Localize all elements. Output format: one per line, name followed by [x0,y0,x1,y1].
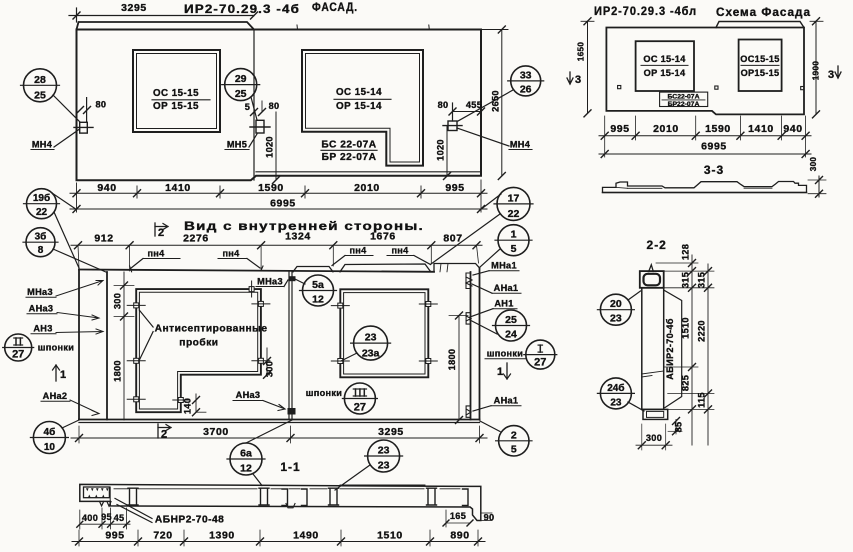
svg-text:12: 12 [312,294,324,306]
svg-text:300: 300 [113,293,123,309]
svg-text:128: 128 [681,244,691,260]
svg-text:33: 33 [520,69,532,81]
svg-text:10: 10 [44,442,56,453]
svg-text:МН4: МН4 [510,140,531,150]
svg-text:995: 995 [445,182,464,194]
svg-text:115: 115 [697,392,707,408]
svg-text:1800: 1800 [113,360,123,382]
svg-text:ОС 15-15: ОС 15-15 [153,88,199,99]
svg-text:25: 25 [34,89,46,101]
svg-text:ФАСАД.: ФАСАД. [312,0,358,14]
svg-text:28: 28 [34,74,46,86]
svg-text:27: 27 [354,402,366,414]
svg-text:АНа2: АНа2 [43,391,68,401]
svg-text:23: 23 [365,332,377,344]
svg-text:шпонки: шпонки [306,388,342,398]
svg-text:300: 300 [265,361,275,377]
svg-text:22: 22 [508,208,520,220]
svg-text:995: 995 [105,530,124,542]
svg-text:165: 165 [450,511,466,521]
svg-text:5: 5 [245,102,250,112]
svg-text:5: 5 [511,444,517,456]
svg-text:АН1: АН1 [494,299,513,309]
svg-text:912: 912 [94,233,113,245]
svg-text:2276: 2276 [183,233,209,245]
svg-text:2: 2 [511,429,517,441]
svg-text:22: 22 [36,207,48,218]
svg-text:ОС15-15: ОС15-15 [740,54,779,64]
svg-text:шпонки: шпонки [38,343,74,353]
svg-text:1020: 1020 [265,136,275,158]
svg-text:3295: 3295 [378,426,404,438]
svg-text:1410: 1410 [165,182,191,194]
svg-text:300: 300 [809,157,818,172]
svg-text:90: 90 [484,513,495,523]
svg-text:25: 25 [505,314,517,326]
svg-text:МНа3: МНа3 [257,277,283,287]
svg-text:2010: 2010 [354,182,380,194]
svg-text:940: 940 [97,182,116,194]
svg-text:80: 80 [96,100,107,110]
svg-text:3: 3 [575,74,581,86]
svg-text:АН3: АН3 [33,324,52,334]
svg-text:1900: 1900 [812,61,821,81]
svg-text:23а: 23а [362,348,380,360]
svg-text:3700: 3700 [203,426,229,438]
svg-text:5а: 5а [312,279,324,291]
svg-text:АНа3: АНа3 [236,390,261,400]
svg-text:МН5: МН5 [227,140,247,150]
svg-text:АНа1: АНа1 [494,396,519,406]
svg-text:3295: 3295 [121,2,147,14]
svg-text:27: 27 [534,357,546,369]
svg-text:26: 26 [520,83,532,95]
svg-text:23: 23 [378,460,390,472]
svg-text:пробки: пробки [179,337,218,349]
svg-text:825: 825 [681,375,691,391]
svg-text:27: 27 [12,349,24,361]
svg-text:БР22-07А: БР22-07А [668,101,700,108]
svg-text:20: 20 [610,298,622,310]
svg-text:Схема Фасада: Схема Фасада [716,5,811,19]
svg-text:6а: 6а [240,448,252,460]
svg-text:29: 29 [235,73,247,85]
svg-text:1: 1 [497,366,503,378]
svg-text:315: 315 [697,272,707,288]
svg-text:1590: 1590 [705,123,731,135]
svg-text:1-1: 1-1 [280,460,300,474]
svg-text:2: 2 [158,227,164,239]
svg-text:1510: 1510 [681,317,691,339]
svg-text:1324: 1324 [285,231,311,243]
svg-text:ОР15-15: ОР15-15 [741,68,780,78]
svg-text:1: 1 [511,229,517,241]
svg-text:23: 23 [610,313,622,325]
svg-text:1410: 1410 [748,123,774,135]
svg-text:ИР2-70.29.3 -4бл: ИР2-70.29.3 -4бл [594,4,697,18]
svg-text:400: 400 [82,513,98,523]
svg-text:720: 720 [153,530,172,542]
svg-text:6995: 6995 [270,198,296,210]
svg-text:19б: 19б [33,192,50,204]
svg-text:пн4: пн4 [391,246,409,256]
svg-text:2: 2 [161,429,167,441]
svg-text:6995: 6995 [701,141,727,153]
svg-text:3б: 3б [35,231,47,243]
svg-text:2-2: 2-2 [647,238,667,252]
svg-text:3-3: 3-3 [704,163,724,177]
svg-text:пн4: пн4 [349,246,367,256]
svg-text:МНа1: МНа1 [491,261,517,271]
svg-text:1676: 1676 [370,231,396,243]
svg-text:17: 17 [508,192,520,204]
svg-text:ОР 15-14: ОР 15-14 [336,101,382,112]
svg-text:85: 85 [674,422,684,433]
svg-text:23: 23 [378,445,390,457]
svg-text:1590: 1590 [258,182,284,194]
svg-text:БР 22-07А: БР 22-07А [322,152,377,163]
svg-text:3: 3 [828,69,834,81]
svg-text:шпонки: шпонки [487,349,523,359]
svg-text:АНа1: АНа1 [494,283,519,293]
svg-text:300: 300 [646,433,662,443]
svg-text:80: 80 [269,101,280,111]
svg-text:12: 12 [240,463,252,475]
svg-text:1490: 1490 [293,530,319,542]
svg-text:995: 995 [610,123,629,135]
svg-text:24б: 24б [607,382,624,394]
svg-text:45: 45 [114,513,125,523]
svg-text:8: 8 [38,245,44,256]
svg-text:1650: 1650 [577,42,586,62]
svg-text:АНа3: АНа3 [29,304,54,314]
svg-text:80: 80 [438,100,449,110]
svg-text:МН4: МН4 [32,140,53,150]
svg-text:АБНР2-70-48: АБНР2-70-48 [155,515,224,526]
svg-text:Антисептированные: Антисептированные [155,324,268,335]
svg-text:пн4: пн4 [147,249,165,259]
svg-text:890: 890 [450,530,469,542]
svg-text:23: 23 [610,397,622,408]
svg-text:4б: 4б [44,426,56,438]
svg-text:2010: 2010 [653,123,679,135]
svg-text:1800: 1800 [447,349,457,371]
svg-text:БС 22-07А: БС 22-07А [321,140,376,151]
svg-text:БС22-07А: БС22-07А [668,93,700,100]
svg-text:ОР 15-15: ОР 15-15 [153,101,199,112]
svg-text:1: 1 [60,369,66,381]
svg-text:ИР2-70.29.3 -4б: ИР2-70.29.3 -4б [184,2,300,16]
svg-text:25: 25 [235,88,247,100]
svg-text:1390: 1390 [209,530,235,542]
svg-text:940: 940 [783,123,802,135]
svg-text:315: 315 [681,272,691,288]
svg-text:2220: 2220 [697,320,707,342]
svg-text:ОС 15-14: ОС 15-14 [336,87,382,98]
svg-text:140: 140 [183,398,193,414]
svg-text:2650: 2650 [491,90,501,112]
svg-text:24: 24 [505,329,517,341]
svg-text:АБИР2-70-4б: АБИР2-70-4б [665,318,675,380]
svg-text:5: 5 [511,243,517,255]
svg-text:1510: 1510 [377,530,403,542]
svg-text:МНа3: МНа3 [27,287,53,297]
svg-text:пн4: пн4 [222,249,240,259]
svg-text:95: 95 [101,512,112,522]
svg-text:1020: 1020 [436,139,446,161]
svg-text:ОР 15-14: ОР 15-14 [644,68,686,78]
svg-text:ОС 15-14: ОС 15-14 [643,54,686,64]
